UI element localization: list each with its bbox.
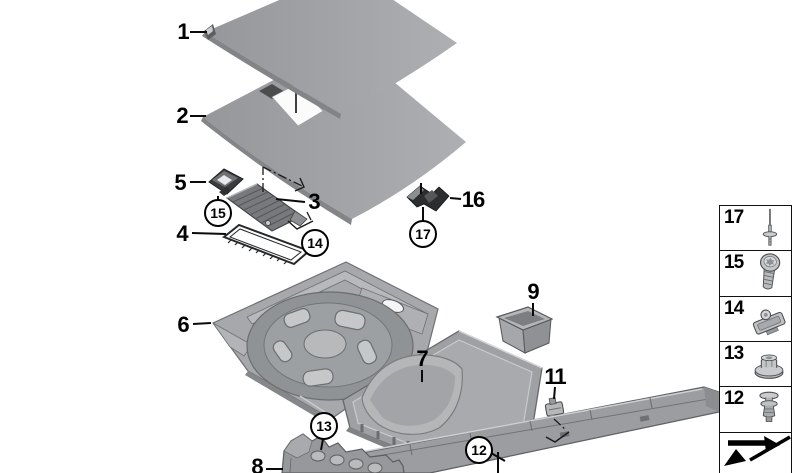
circled-callout-15[interactable]: 15: [204, 199, 232, 227]
diagram-canvas: [0, 0, 800, 473]
callout-7[interactable]: 7: [416, 348, 427, 370]
clip-nut-icon: [748, 297, 790, 341]
circled-callout-13[interactable]: 13: [310, 412, 338, 440]
legend-row-14[interactable]: 14: [719, 296, 792, 343]
callout-11[interactable]: 11: [544, 366, 565, 388]
bent-arrow-icon: [720, 433, 791, 471]
legend-number: 13: [724, 343, 743, 365]
callout-8[interactable]: 8: [251, 456, 262, 473]
part-16-bracket: [407, 186, 449, 211]
torx-screw-icon: [748, 251, 790, 295]
callout-9[interactable]: 9: [527, 281, 538, 303]
fastener-legend: 17 15 14: [719, 205, 793, 473]
part-4-seal-frame: [224, 225, 309, 264]
parts-diagram-page: 1 2 5 3 4 16 6 9 7 11 8 15 14 17 13 12 1…: [0, 0, 800, 473]
expanding-rivet-icon: [748, 387, 790, 431]
legend-number: 15: [724, 252, 743, 274]
callout-6[interactable]: 6: [177, 314, 188, 336]
circled-callout-12[interactable]: 12: [465, 436, 493, 464]
callout-4[interactable]: 4: [176, 223, 187, 245]
part-5-grommet: [209, 169, 243, 196]
legend-row-more[interactable]: [719, 432, 792, 473]
washer-pin-screw-icon: [748, 206, 790, 250]
callout-16[interactable]: 16: [462, 189, 484, 211]
callout-3[interactable]: 3: [308, 191, 319, 213]
flange-nut-icon: [748, 342, 790, 386]
circled-callout-14[interactable]: 14: [301, 229, 329, 257]
legend-row-13[interactable]: 13: [719, 341, 792, 388]
legend-row-15[interactable]: 15: [719, 250, 792, 297]
legend-number: 17: [724, 207, 743, 229]
callout-2[interactable]: 2: [176, 105, 187, 127]
legend-number: 14: [724, 298, 743, 320]
callout-1[interactable]: 1: [177, 21, 188, 43]
part-9-storage-bin: [497, 307, 552, 353]
legend-row-12[interactable]: 12: [719, 386, 792, 433]
legend-row-17[interactable]: 17: [719, 205, 792, 252]
callout-5[interactable]: 5: [174, 172, 185, 194]
circled-callout-17[interactable]: 17: [409, 220, 437, 248]
legend-number: 12: [724, 388, 743, 410]
